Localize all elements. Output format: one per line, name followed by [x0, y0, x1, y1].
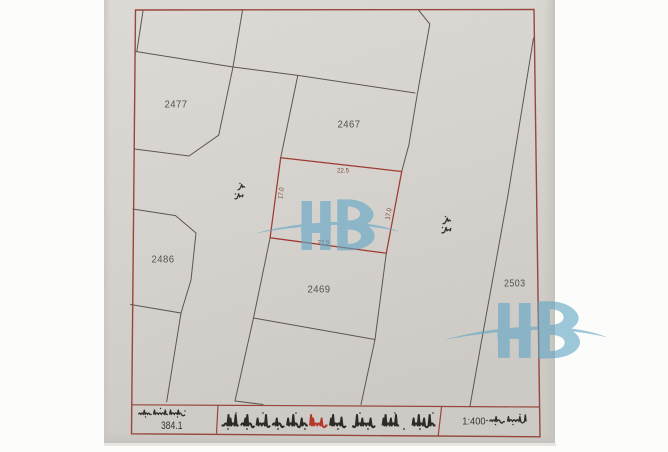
svg-text:17.0: 17.0 [277, 187, 285, 199]
svg-text:384.1: 384.1 [161, 420, 183, 432]
svg-text:2503: 2503 [504, 279, 526, 290]
svg-text:22.5: 22.5 [337, 168, 349, 175]
svg-text:1:400: 1:400 [462, 417, 486, 428]
svg-text:2469: 2469 [308, 285, 331, 296]
svg-text:2486: 2486 [152, 255, 175, 266]
svg-text:2467: 2467 [338, 120, 361, 131]
svg-text:2477: 2477 [165, 100, 188, 111]
